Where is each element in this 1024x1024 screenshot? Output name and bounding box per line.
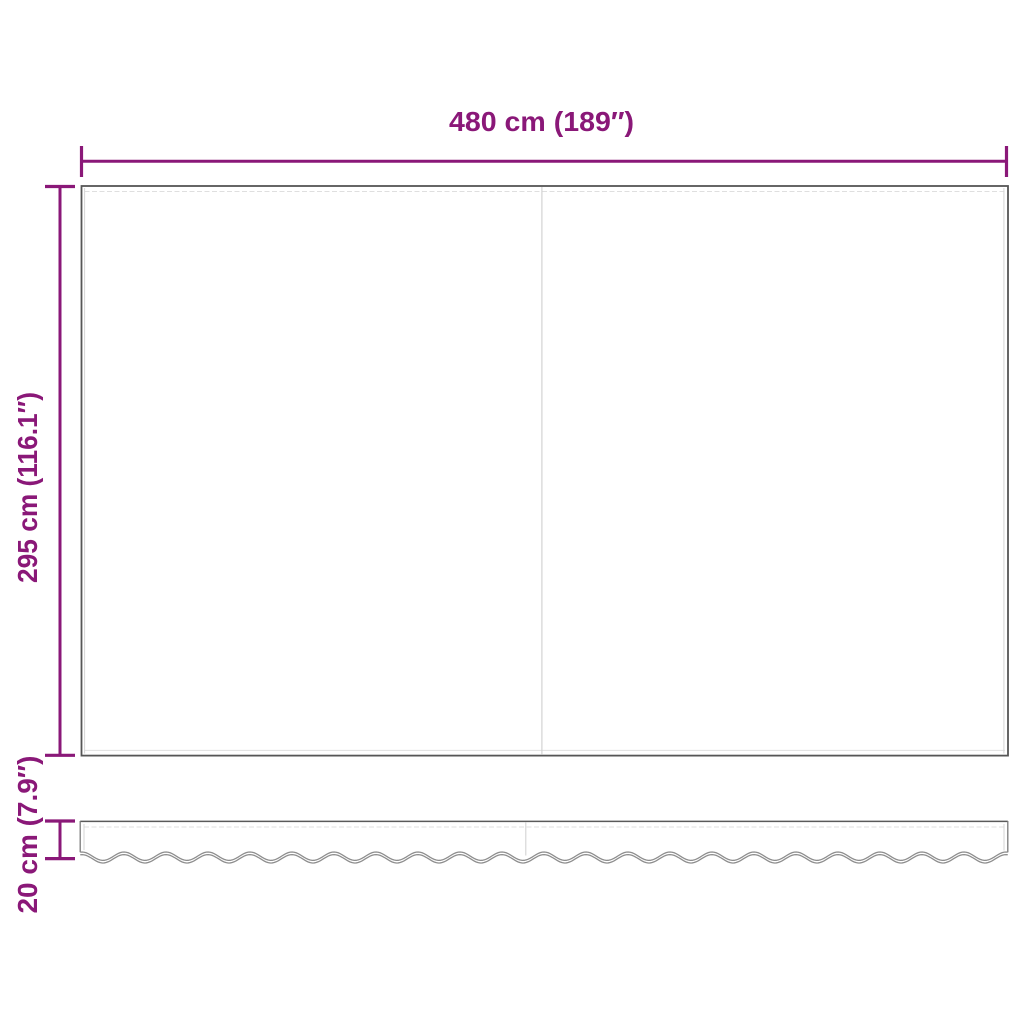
svg-text:295 cm (116.1″): 295 cm (116.1″) [12,392,43,583]
svg-text:480 cm (189″): 480 cm (189″) [449,106,634,137]
svg-text:20 cm (7.9″): 20 cm (7.9″) [12,756,43,914]
